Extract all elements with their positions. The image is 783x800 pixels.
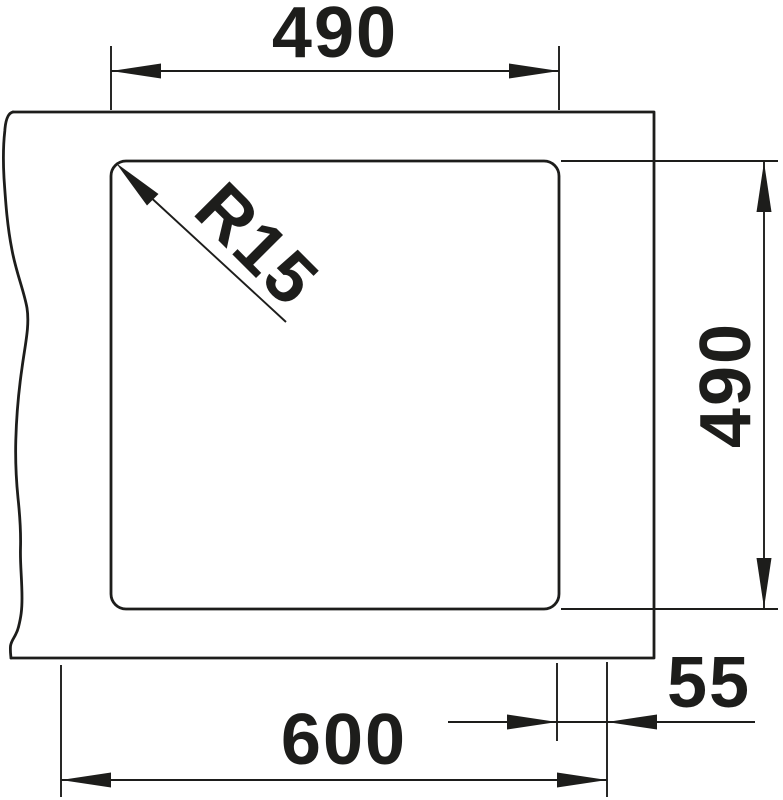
dimension-bottom-width: 600 [61, 662, 607, 797]
bowl-outline [111, 161, 559, 609]
drawing-canvas: 490 490 600 55 [0, 0, 783, 800]
arrowhead-left [111, 64, 161, 79]
radius-arrowhead [116, 163, 159, 206]
radius-callout: R15 [116, 163, 334, 322]
arrowhead-top [757, 162, 772, 212]
arrowhead-right [509, 64, 559, 79]
dimension-label-right-height: 490 [686, 322, 766, 448]
arrowhead-left [507, 715, 557, 730]
arrowhead-right [607, 715, 657, 730]
sink-dimension-drawing: 490 490 600 55 [0, 0, 783, 800]
break-line [3, 112, 27, 658]
worktop-outline [11, 112, 654, 658]
dimension-label-bottom-width: 600 [281, 700, 407, 780]
arrowhead-bottom [757, 558, 772, 608]
dimension-label-right-offset: 55 [667, 643, 751, 723]
radius-label: R15 [180, 168, 334, 322]
dimension-label-top-width: 490 [272, 0, 398, 73]
dimension-top-width: 490 [111, 0, 559, 110]
arrowhead-right [557, 773, 607, 788]
arrowhead-left [61, 773, 111, 788]
dimension-right-height: 490 [561, 161, 778, 609]
